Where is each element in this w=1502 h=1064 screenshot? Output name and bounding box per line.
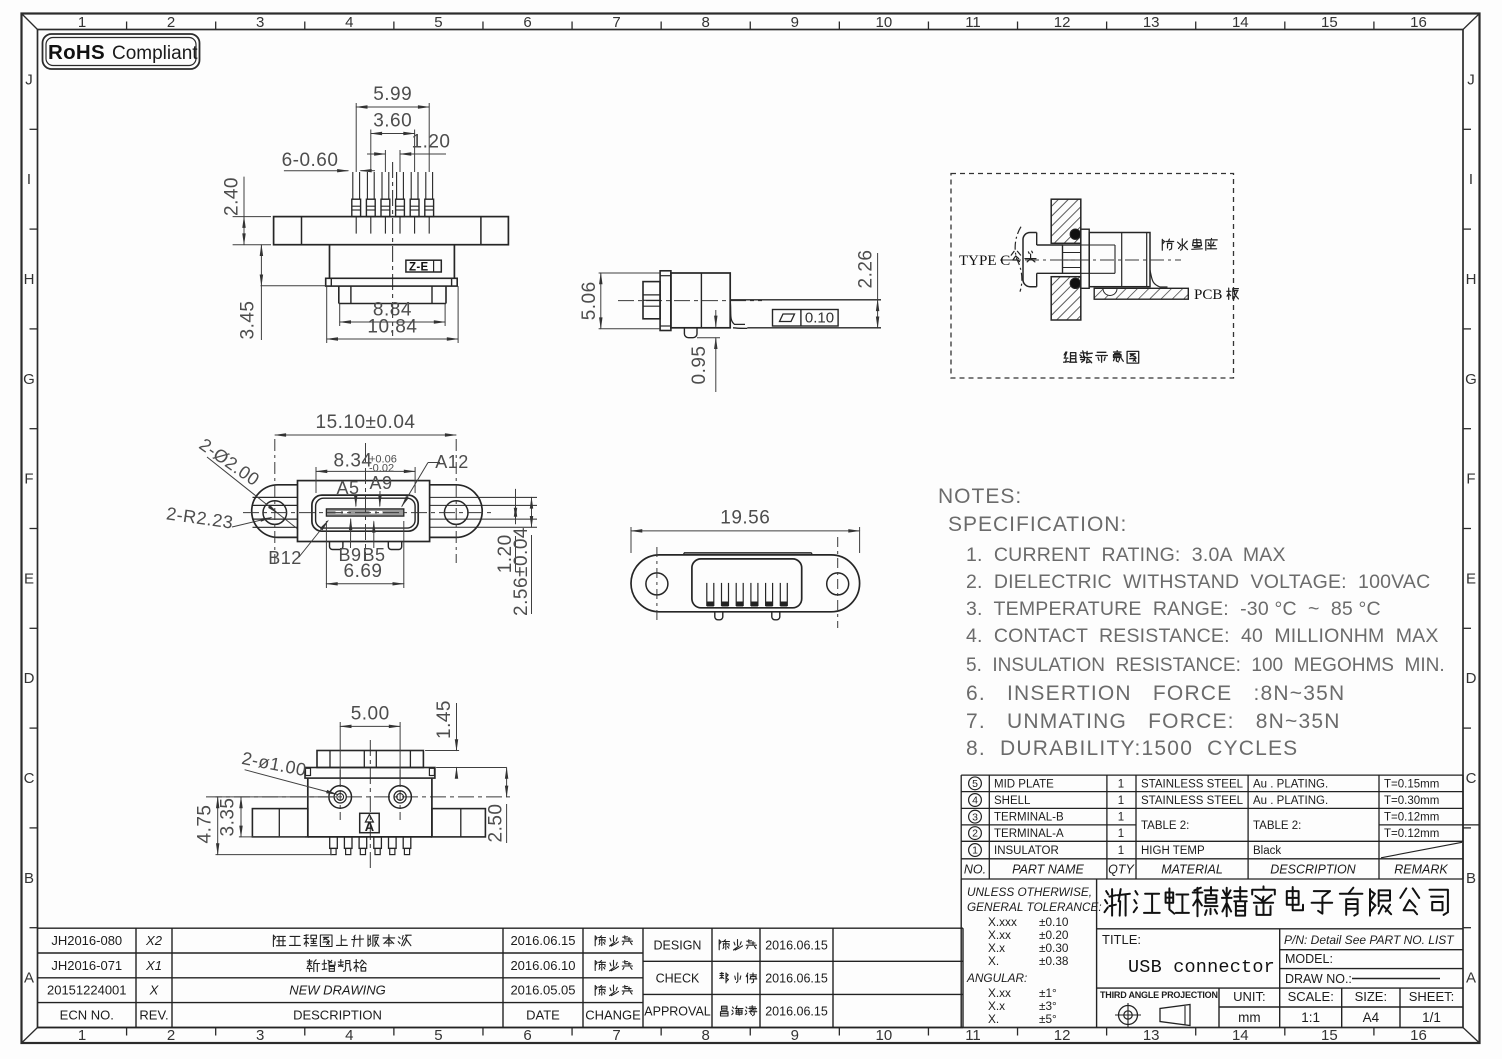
svg-text:D: D [24,670,35,687]
svg-text:6: 6 [523,1027,531,1044]
svg-text:±1°: ±1° [1039,986,1057,1000]
svg-text:3.45: 3.45 [238,301,259,340]
svg-text:DESCRIPTION: DESCRIPTION [293,1008,382,1023]
svg-text:THIRD ANGLE PROJECTION: THIRD ANGLE PROJECTION [1100,990,1218,1000]
svg-text:2: 2 [167,14,175,31]
svg-text:QTY: QTY [1108,862,1135,876]
svg-text:B: B [1466,870,1476,887]
svg-text:9: 9 [791,1027,799,1044]
svg-text:1: 1 [1118,795,1124,807]
svg-text:2016.06.15: 2016.06.15 [765,938,828,952]
svg-text:5. INSULATION RESISTANCE: 1: 5. INSULATION RESISTANCE: 100 MEGOHMS MI… [966,655,1445,676]
svg-text:SHEET:: SHEET: [1409,989,1455,1004]
svg-text:7: 7 [612,14,620,31]
svg-text:4: 4 [345,1027,353,1044]
svg-text:NEW DRAWING: NEW DRAWING [289,983,386,998]
svg-text:TABLE 2:: TABLE 2: [1253,820,1301,832]
svg-text:Z-E: Z-E [409,261,428,273]
svg-text:F: F [24,471,33,488]
svg-text:H: H [1466,271,1477,288]
svg-text:PART NAME: PART NAME [1012,862,1084,876]
svg-text:NO.: NO. [964,862,986,876]
svg-text:Compliant: Compliant [112,43,198,64]
svg-text:2016.06.10: 2016.06.10 [510,958,575,973]
svg-text:20151224001: 20151224001 [47,983,127,998]
svg-text:B: B [24,870,34,887]
svg-text:6-0.60: 6-0.60 [282,150,339,171]
svg-text:8: 8 [702,14,710,31]
svg-text:X.x: X.x [988,941,1005,955]
svg-text:DATE: DATE [526,1008,560,1023]
svg-text:8.34: 8.34 [334,451,373,472]
svg-text:12: 12 [1054,1027,1071,1044]
svg-text:UNLESS OTHERWISE,: UNLESS OTHERWISE, [967,885,1092,899]
svg-text:DESCRIPTION: DESCRIPTION [1270,862,1356,876]
svg-text:USB connector: USB connector [1128,957,1275,978]
svg-text:1.20: 1.20 [412,132,451,153]
svg-text:19.56: 19.56 [720,508,770,529]
svg-text:JH2016-080: JH2016-080 [51,933,122,948]
svg-text:X: X [149,983,160,998]
svg-text:±0.10: ±0.10 [1039,915,1069,929]
svg-text:6: 6 [523,14,531,31]
svg-text:10.84: 10.84 [367,317,417,338]
svg-text:TERMINAL-A: TERMINAL-A [994,828,1064,840]
svg-text:APPROVAL: APPROVAL [644,1004,711,1018]
svg-text:X.xx: X.xx [988,986,1011,1000]
svg-text:B12: B12 [268,548,302,568]
svg-text:0.95: 0.95 [689,346,710,385]
svg-text:±5°: ±5° [1039,1012,1057,1026]
svg-text:0.10: 0.10 [805,310,834,327]
svg-text:12: 12 [1054,14,1071,31]
svg-text:4. CONTACT RESISTANCE: 40: 4. CONTACT RESISTANCE: 40 MILLIONHM MAX [966,625,1439,647]
svg-text:16: 16 [1410,14,1427,31]
svg-text:INSULATOR: INSULATOR [994,845,1059,857]
svg-text:11: 11 [965,14,981,31]
svg-text:±3°: ±3° [1039,999,1057,1013]
svg-text:GENERAL TOLERANCE:: GENERAL TOLERANCE: [967,900,1102,914]
svg-text:SIZE:: SIZE: [1355,989,1388,1004]
svg-text:2.26: 2.26 [856,250,877,289]
svg-text:1: 1 [78,1027,86,1044]
svg-text:C: C [24,770,35,787]
svg-text:P/N: Detail See PART NO. L: P/N: Detail See PART NO. LIST [1284,933,1455,947]
svg-text:1/1: 1/1 [1422,1010,1441,1025]
svg-text:DESIGN: DESIGN [654,938,702,952]
svg-text:X1: X1 [145,958,162,973]
svg-text:2: 2 [972,828,978,840]
svg-text:I: I [1469,171,1473,188]
svg-text:Black: Black [1253,845,1281,857]
svg-text:T=0.30mm: T=0.30mm [1384,795,1439,807]
svg-text:14: 14 [1232,14,1249,31]
svg-text:A: A [24,970,34,987]
svg-text:ECN NO.: ECN NO. [60,1008,114,1023]
svg-text:SCALE:: SCALE: [1288,989,1334,1004]
svg-text:5.99: 5.99 [373,84,412,105]
svg-text:9: 9 [791,14,799,31]
svg-text:H: H [24,271,35,288]
svg-text:I: I [27,171,31,188]
svg-text:J: J [25,71,33,88]
svg-text:STAINLESS STEEL: STAINLESS STEEL [1141,795,1244,807]
svg-text:4: 4 [345,14,353,31]
svg-text:MATERIAL: MATERIAL [1161,862,1223,876]
svg-text:Au . PLATING.: Au . PLATING. [1253,795,1328,807]
svg-text:X.xx: X.xx [988,928,1011,942]
svg-text:G: G [1465,371,1477,388]
svg-text:3: 3 [256,14,264,31]
svg-text:2016.06.15: 2016.06.15 [765,1004,828,1018]
svg-text:7. UNMATING FORCE: 8N~35: 7. UNMATING FORCE: 8N~35N [966,710,1341,733]
svg-text:10: 10 [876,14,893,31]
svg-text:2016.06.15: 2016.06.15 [765,971,828,985]
svg-text:TERMINAL-B: TERMINAL-B [994,812,1064,824]
svg-text:A: A [1466,970,1476,987]
svg-text:MID PLATE: MID PLATE [994,778,1054,790]
svg-text:2.40: 2.40 [222,177,243,216]
svg-text:CHANGE: CHANGE [585,1008,641,1023]
svg-text:J: J [1467,71,1475,88]
svg-text:2: 2 [167,1027,175,1044]
svg-text:1: 1 [1118,845,1124,857]
svg-text:2. DIELECTRIC WITHSTAND VOL: 2. DIELECTRIC WITHSTAND VOLTAGE: 100VAC [966,571,1430,593]
svg-text:±0.30: ±0.30 [1039,941,1069,955]
svg-text:10: 10 [876,1027,893,1044]
svg-text:F: F [1466,471,1475,488]
svg-text:X.xxx: X.xxx [988,915,1017,929]
svg-text:2016.05.05: 2016.05.05 [510,983,575,998]
svg-text:15.10±0.04: 15.10±0.04 [316,412,416,433]
svg-text:PCB: PCB [1194,287,1222,303]
svg-text:1: 1 [1118,778,1124,790]
svg-text:2.50: 2.50 [486,804,507,843]
svg-text:1: 1 [78,14,86,31]
svg-text:SHELL: SHELL [994,795,1031,807]
svg-text:NOTES:: NOTES: [938,485,1022,508]
svg-text:MODEL:: MODEL: [1285,952,1333,966]
svg-text:X.x: X.x [988,999,1005,1013]
svg-text:5: 5 [972,778,978,790]
svg-text:5.00: 5.00 [351,704,390,725]
svg-text:1: 1 [1118,812,1124,824]
svg-text:16: 16 [1410,1027,1427,1044]
svg-text:C: C [1466,770,1477,787]
svg-text:G: G [23,371,35,388]
svg-text:mm: mm [1238,1010,1261,1025]
svg-text:REV.: REV. [139,1008,168,1023]
svg-text:TABLE 2:: TABLE 2: [1141,820,1189,832]
svg-text:13: 13 [1143,1027,1160,1044]
svg-text:A4: A4 [1363,1010,1380,1025]
svg-text:X2: X2 [145,933,163,948]
svg-text:2016.06.15: 2016.06.15 [510,933,575,948]
svg-text:11: 11 [965,1027,981,1044]
svg-text:A12: A12 [435,452,469,472]
svg-text:3: 3 [972,811,978,823]
svg-text:D: D [1466,670,1477,687]
svg-text:1:1: 1:1 [1301,1010,1320,1025]
svg-text:3: 3 [256,1027,264,1044]
svg-text:4.75: 4.75 [195,805,216,844]
svg-text:15: 15 [1321,14,1338,31]
svg-text:8: 8 [702,1027,710,1044]
svg-text:TITLE:: TITLE: [1102,932,1141,947]
svg-text:TYPE C: TYPE C [959,253,1010,269]
svg-text:SPECIFICATION:: SPECIFICATION: [948,513,1127,536]
svg-text:A: A [365,819,375,834]
svg-text:1: 1 [1118,828,1124,840]
svg-text:X.: X. [988,1012,999,1026]
svg-text:E: E [24,570,34,587]
svg-text:T=0.12mm: T=0.12mm [1384,828,1439,840]
svg-text:1: 1 [972,845,978,857]
svg-text:4: 4 [972,795,978,807]
svg-text:A9: A9 [369,473,392,493]
svg-text:T=0.15mm: T=0.15mm [1384,778,1439,790]
svg-text:±0.20: ±0.20 [1039,928,1069,942]
svg-text:5: 5 [434,14,442,31]
svg-text:1.45: 1.45 [434,700,455,739]
svg-text:Au . PLATING.: Au . PLATING. [1253,778,1328,790]
svg-text:5: 5 [434,1027,442,1044]
svg-text:6. INSERTION FORCE :8N~3: 6. INSERTION FORCE :8N~35N [966,682,1345,705]
svg-text:8. DURABILITY:1500 CYCLES: 8. DURABILITY:1500 CYCLES [966,737,1298,760]
svg-text:REMARK: REMARK [1394,862,1448,876]
svg-text:T=0.12mm: T=0.12mm [1384,812,1439,824]
svg-text:±0.38: ±0.38 [1039,954,1069,968]
svg-text:3.60: 3.60 [373,111,412,132]
svg-text:X.: X. [988,954,999,968]
svg-text:E: E [1466,570,1476,587]
svg-text:A5: A5 [336,478,359,498]
svg-text:RoHS: RoHS [48,41,105,64]
svg-text:15: 15 [1321,1027,1338,1044]
svg-text:6.69: 6.69 [344,561,383,582]
svg-text:ANGULAR:: ANGULAR: [966,971,1027,985]
svg-text:7: 7 [612,1027,620,1044]
svg-text:DRAW NO.:: DRAW NO.: [1285,972,1352,986]
svg-text:UNIT:: UNIT: [1233,989,1266,1004]
svg-text:5.06: 5.06 [579,281,600,320]
svg-text:14: 14 [1232,1027,1249,1044]
svg-text:1. CURRENT RATING: 3.0A MA: 1. CURRENT RATING: 3.0A MAX [966,544,1286,566]
svg-text:STAINLESS STEEL: STAINLESS STEEL [1141,778,1244,790]
svg-text:HIGH TEMP: HIGH TEMP [1141,845,1205,857]
svg-text:2.56±0.04: 2.56±0.04 [511,527,532,616]
svg-text:3.35: 3.35 [218,798,239,837]
svg-text:3. TEMPERATURE RANGE: -30 °: 3. TEMPERATURE RANGE: -30 °C ~ 85 °C [966,598,1381,620]
svg-text:JH2016-071: JH2016-071 [51,958,122,973]
svg-text:13: 13 [1143,14,1160,31]
svg-text:CHECK: CHECK [656,971,700,985]
